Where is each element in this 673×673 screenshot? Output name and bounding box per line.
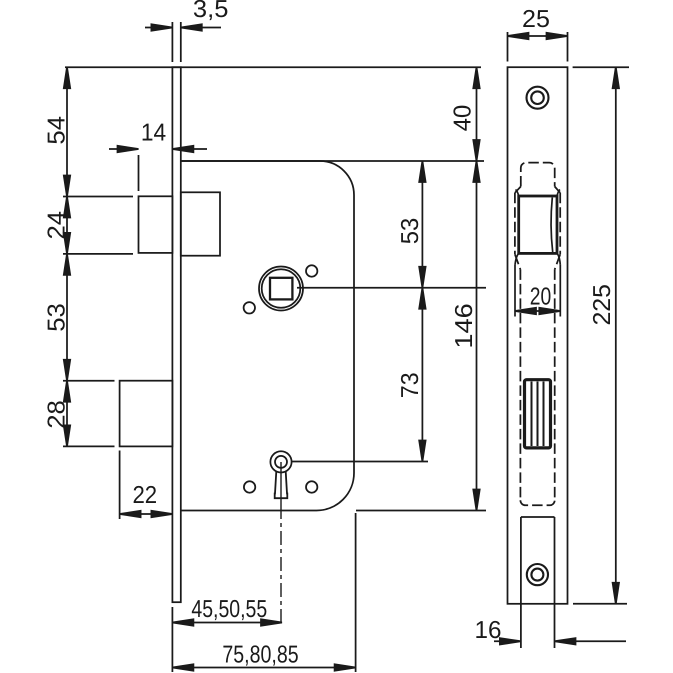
svg-text:22: 22 bbox=[132, 482, 157, 509]
svg-text:28: 28 bbox=[43, 400, 70, 429]
svg-text:53: 53 bbox=[397, 218, 424, 245]
svg-text:75,80,85: 75,80,85 bbox=[222, 641, 298, 668]
svg-text:225: 225 bbox=[589, 284, 616, 326]
svg-text:3,5: 3,5 bbox=[193, 0, 229, 23]
svg-text:20: 20 bbox=[530, 284, 552, 311]
svg-text:53: 53 bbox=[43, 303, 70, 332]
svg-text:24: 24 bbox=[43, 211, 70, 240]
svg-text:146: 146 bbox=[451, 303, 478, 348]
svg-text:73: 73 bbox=[397, 372, 424, 398]
svg-text:25: 25 bbox=[522, 6, 550, 33]
svg-text:40: 40 bbox=[450, 105, 477, 132]
svg-text:54: 54 bbox=[43, 116, 70, 145]
svg-text:14: 14 bbox=[141, 119, 166, 146]
svg-text:16: 16 bbox=[475, 617, 502, 644]
svg-text:45,50,55: 45,50,55 bbox=[191, 596, 267, 623]
